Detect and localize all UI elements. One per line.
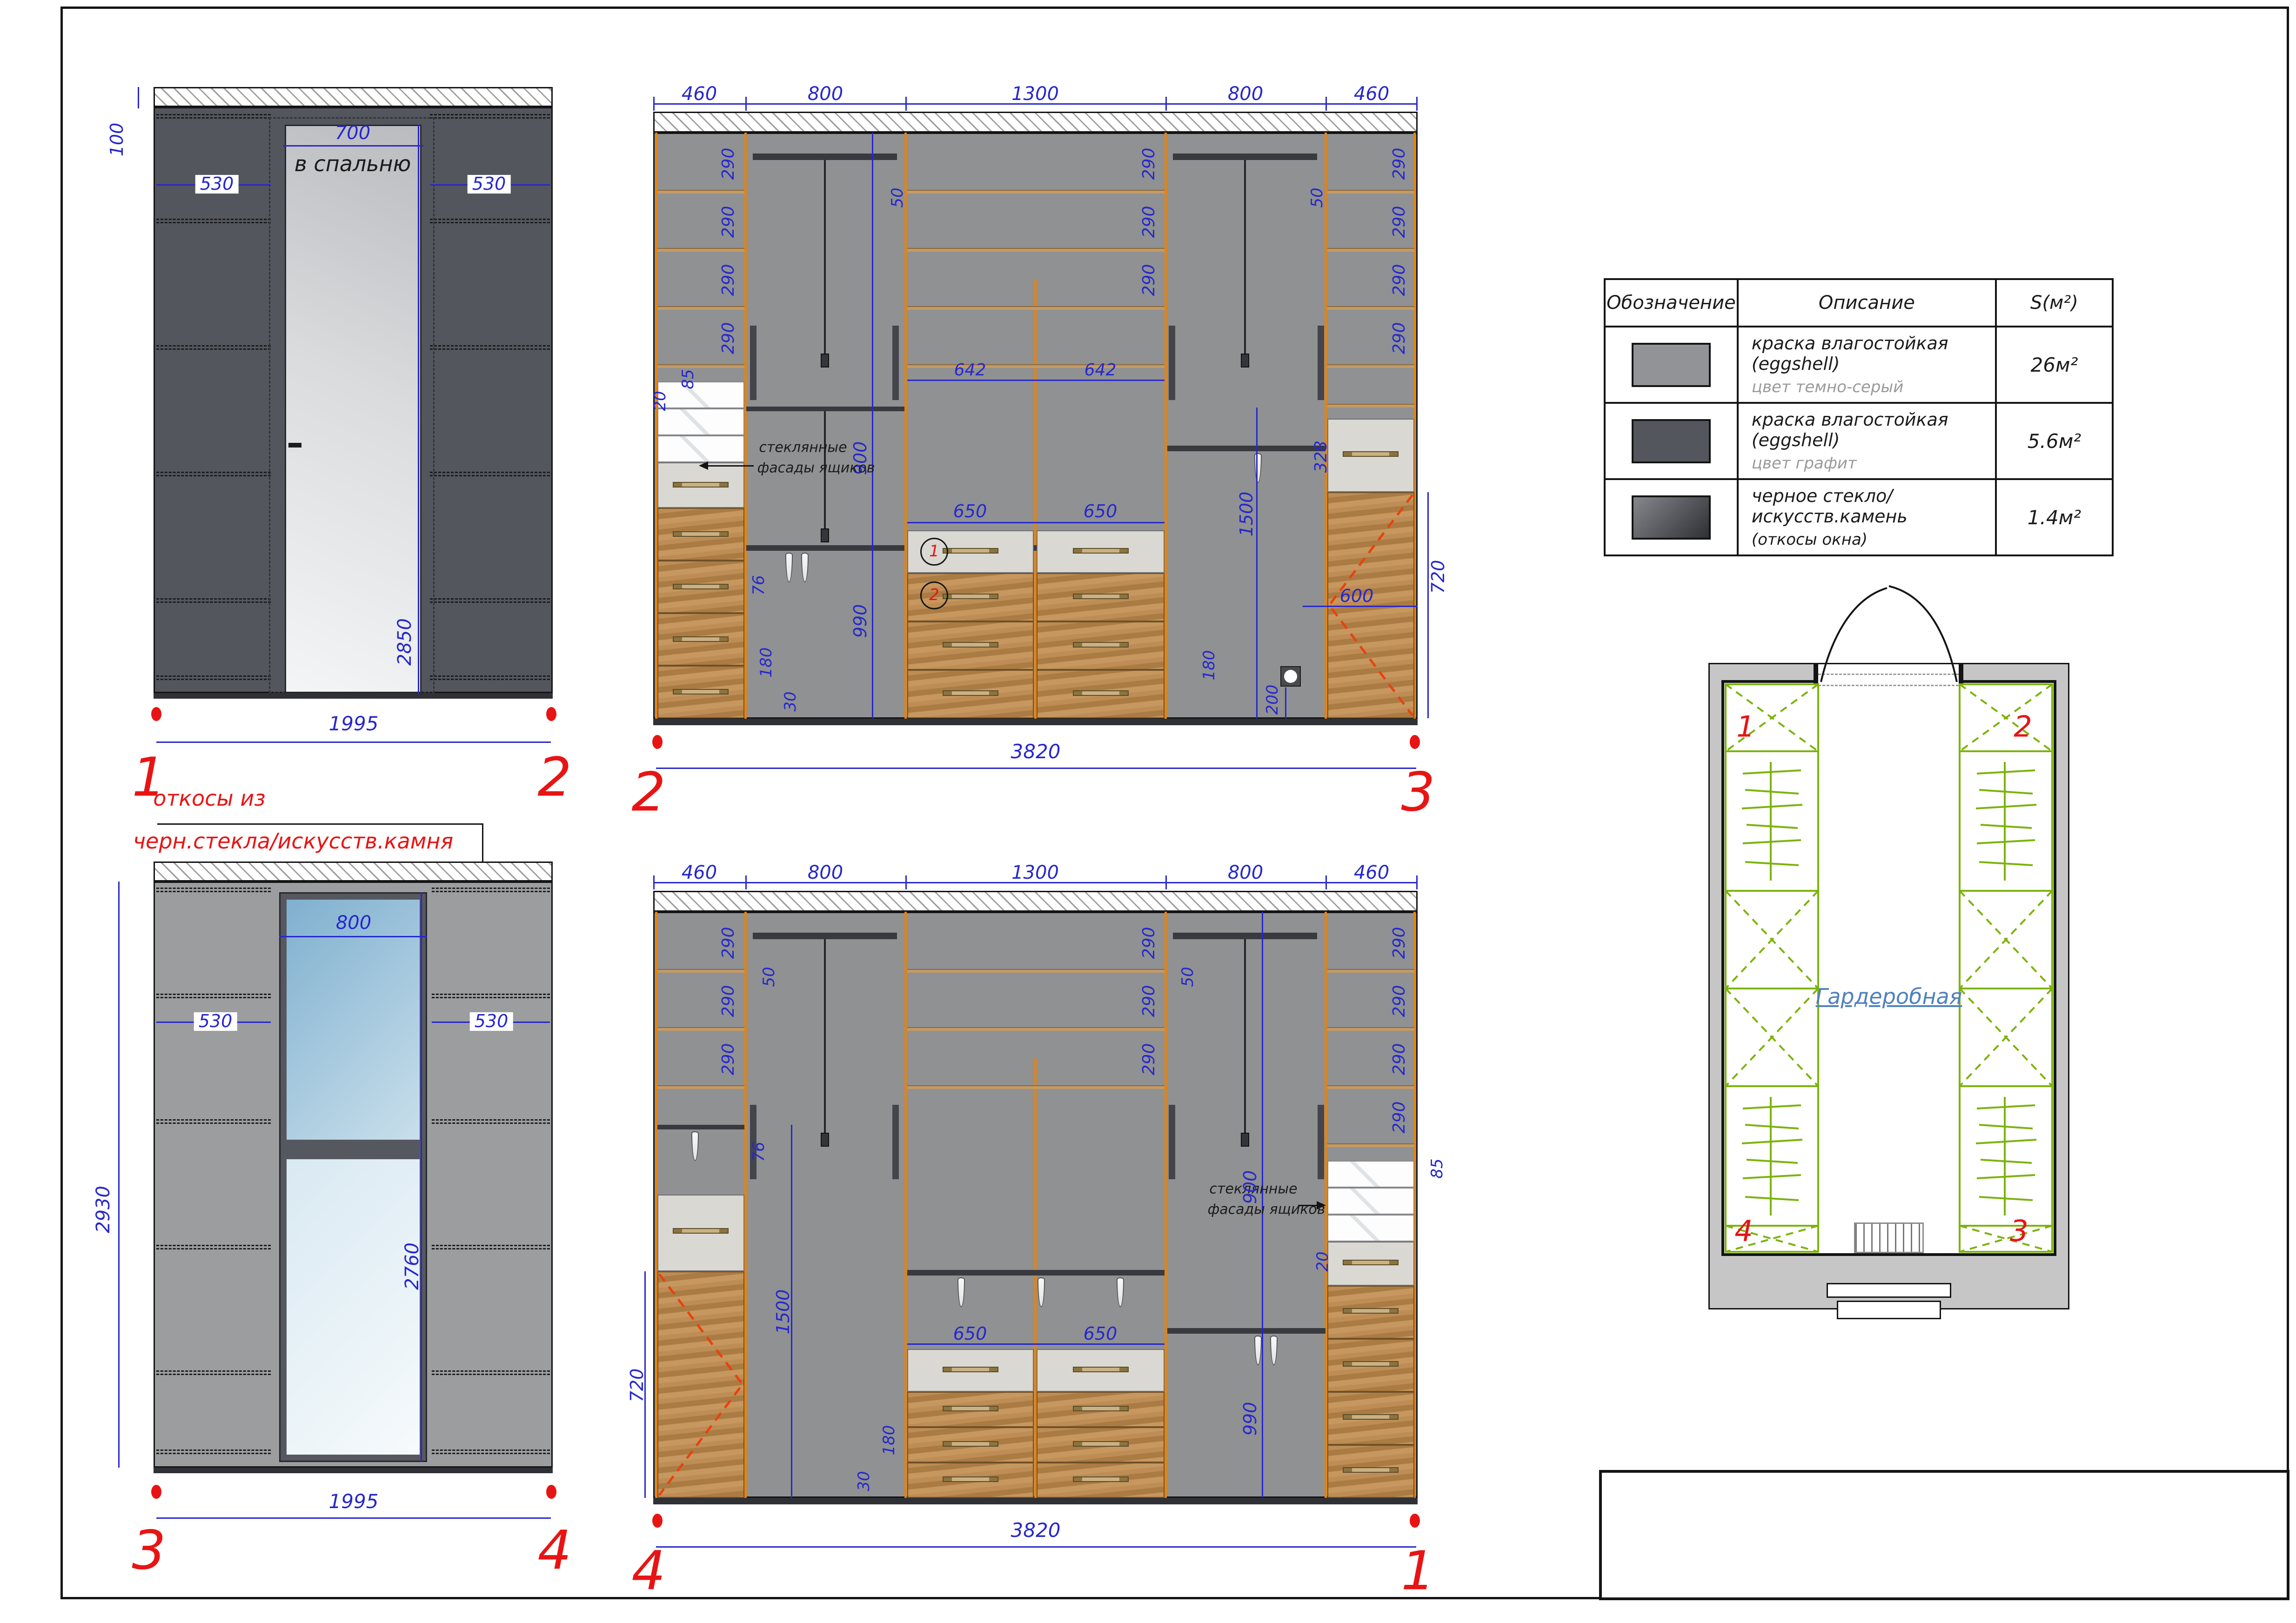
shelf [907,1027,1165,1031]
drawer-handle [943,1406,998,1411]
drawer-handle [673,1228,729,1234]
eld-dim-720: 720 [628,1369,647,1403]
eld-dim-290: 290 [1140,1043,1158,1075]
drawer-handle [673,636,729,642]
drawer-handle [1343,1260,1399,1265]
elb-dim-290: 290 [1140,206,1158,238]
panel-joint [156,345,271,350]
eld-dim-290: 290 [1140,927,1158,959]
elb-dim-990: 990 [851,604,870,638]
elc-marker-3: 3 [132,1523,166,1579]
drawer-handle [1073,548,1129,554]
legend-row: краска влагостойкая (eggshell) цвет граф… [1605,403,2113,479]
shelf [1327,306,1414,310]
dim-line [872,133,873,718]
drawer-handle [1343,1308,1399,1314]
elb-dim-290: 290 [1391,264,1408,296]
drawer-handle [1073,1441,1129,1447]
lift-bracket [1318,1105,1324,1179]
ela-dim-530-right: 530 [468,175,511,194]
partition [904,133,907,719]
section-dot [652,735,663,749]
elb-dim-290: 290 [1140,264,1158,296]
dim-tick [653,97,655,111]
plan-wardrobe-right [1958,683,2054,1253]
lift-handle [1241,1133,1249,1147]
drawer-handle [1343,1361,1399,1367]
shelf [907,306,1165,310]
eld-dim-1500: 1500 [774,1289,793,1335]
dim-line [1256,407,1258,718]
elb-dim-642: 642 [954,361,986,379]
ela-dim-1995: 1995 [329,714,379,734]
lift-bracket [1318,326,1324,400]
plan-door-threshold [1818,685,1959,686]
legend-row: краска влагостойкая (eggshell) цвет темн… [1605,327,2113,403]
door-swing-symbol [657,1271,744,1498]
drawer-handle [1073,690,1129,696]
shelf [657,364,744,368]
elb-dim-290: 290 [720,322,737,354]
eld-dim-50: 50 [1180,967,1197,987]
hanging-rail [657,1125,744,1129]
legend-desc-sub: цвет темно-серый [1752,378,1995,396]
elc-marker-4: 4 [537,1523,571,1579]
eld-dim-76: 76 [751,1142,768,1162]
eld-dim-900: 900 [1241,1170,1260,1204]
partition [904,912,907,1498]
drawer-handle [1073,1367,1129,1372]
plan-window-sill [1837,1301,1941,1319]
section-dot [652,1514,663,1528]
lift-bracket [750,326,756,400]
panel-joint [156,598,271,603]
elb-dim-top-460b: 460 [1354,84,1389,104]
dim-line [1427,492,1429,718]
elb-marker-3: 3 [1401,765,1435,821]
elb-dim-1500: 1500 [1238,492,1256,537]
lift-rod [824,160,826,354]
dim-tick [1416,97,1418,111]
section-dot [546,707,556,721]
shelf [907,1085,1165,1089]
drawer-handle [943,1476,998,1482]
dim-line [418,125,419,693]
dim-tick [905,875,907,889]
ela-marker-2: 2 [537,750,571,806]
elb-dim-642: 642 [1084,361,1117,379]
drawer-handle [943,642,998,648]
plan-room-label: Гардеробная [1816,985,1962,1008]
panel-joint [156,219,271,223]
elb-dim-650: 650 [1084,502,1118,521]
door-handle [288,443,301,447]
eld-note-glass-2: фасады ящиков [1208,1202,1325,1217]
elb-dim-top-460a: 460 [682,84,717,104]
plan-marker-4: 4 [1734,1216,1753,1246]
elb-dim-top-1300: 1300 [1011,84,1059,104]
legend-header-area: S(м²) [1996,279,2113,327]
eld-dim-top-800a: 800 [808,863,843,882]
elb-dim-290: 290 [720,148,737,180]
legend-area: 5.6м² [1996,403,2113,479]
mid-shelf [1167,446,1325,451]
shelf [1327,1085,1414,1089]
ela-door-leaf [285,125,422,693]
dim-tick [1165,97,1167,111]
elb-dim-290: 290 [1391,322,1408,354]
hanging-rail [907,1270,1165,1276]
dim-tick [1416,875,1418,889]
elb-dim-600: 600 [1340,587,1374,606]
legend-area: 1.4м² [1996,479,2113,555]
shelf [1327,1027,1414,1031]
partition [1165,133,1167,719]
eld-dim-290: 290 [720,985,737,1017]
dim-line [283,145,423,147]
legend-desc: краска влагостойкая (eggshell) [1752,333,1995,374]
note-leader [708,465,754,467]
ela-dim-700: 700 [335,123,370,143]
ela-ceiling-hatch [154,87,553,107]
lift-bracket [1169,326,1175,400]
mid-shelf [746,407,904,411]
panel-joint [156,888,271,892]
elb-dim-180: 180 [1201,650,1218,681]
eld-dim-top-1300: 1300 [1011,863,1059,882]
elb-drawer-ref-2: 2 [920,581,948,609]
lift-top-bar [1173,933,1317,939]
legend-swatch-graphite-paint [1632,419,1711,463]
legend-row: черное стекло/искусств.камень (откосы ок… [1605,479,2113,555]
eld-dim-290: 290 [1391,927,1408,959]
glass-drawer [1327,1215,1414,1242]
plan-marker-1: 1 [1736,711,1754,741]
elb-dim-50: 50 [890,187,906,207]
drawing-sheet: Обозначение Описание S(м²) краска влагос… [0,0,2296,1623]
elb-dim-3820: 3820 [1011,741,1061,762]
dim-line [279,936,427,937]
panel-joint [432,1245,550,1249]
note-leader-arrow [699,461,708,470]
dim-line [118,882,120,1468]
panel-joint [156,994,271,998]
elb-dim-328: 328 [1312,441,1330,473]
eld-dim-290: 290 [720,1043,737,1075]
lift-rod [1244,160,1246,354]
shelf [907,364,1165,368]
lift-top-bar [753,154,897,160]
elb-dim-290: 290 [1391,148,1408,180]
legend-table: Обозначение Описание S(м²) краска влагос… [1604,278,2114,556]
panel-joint [432,1119,550,1124]
panel-joint [430,472,550,476]
lift-top-bar [1173,154,1317,160]
dim-line [656,768,1416,769]
drawer-handle [943,1367,998,1372]
drawer-handle [943,594,998,599]
dim-line [138,87,139,108]
lift-handle [821,528,829,542]
dim-tick [1165,875,1167,889]
shelf [1327,1143,1414,1147]
panel-joint [156,1245,271,1249]
plan-marker-3: 3 [2010,1216,2028,1246]
section-dot [151,707,161,721]
eld-dim-290: 290 [1391,985,1408,1017]
dim-tick [1325,875,1327,889]
elb-dim-290: 290 [1140,148,1158,180]
shelf [657,190,744,194]
dim-tick [1325,97,1327,111]
shelf [907,248,1165,252]
drawer-handle [943,690,998,696]
elc-window-glass-bottom [287,1159,420,1455]
elb-note-glass-2: фасады ящиков [757,461,875,475]
drawer-handle [943,548,998,554]
eld-dim-180: 180 [881,1425,898,1456]
panel-joint [156,114,271,119]
elb-note-glass-1: стеклянные [759,440,847,455]
eld-marker-1: 1 [1401,1543,1435,1600]
plan-window [1827,1283,1951,1298]
note-line-1: откосы из [153,787,265,809]
socket-face [1284,670,1297,683]
section-dot [1410,735,1420,749]
elb-dim-290: 290 [720,206,737,238]
eld-dim-290: 290 [1391,1043,1408,1075]
section-dot [1410,1514,1420,1528]
panel-joint [432,1449,550,1454]
legend-desc: краска влагостойкая (eggshell) [1752,409,1995,450]
shelf [657,1027,744,1031]
dim-tick [745,875,747,889]
elb-dim-720: 720 [1429,560,1448,594]
elc-dim-2930: 2930 [94,1186,113,1233]
dim-line [907,380,1165,381]
shelf [1327,404,1414,407]
panel-joint [430,345,550,350]
drawer-handle [673,482,729,488]
ela-dim-100: 100 [108,123,127,157]
plan-radiator [1854,1222,1924,1253]
eld-dim-650: 650 [953,1325,987,1343]
legend-desc-sub: (откосы окна) [1752,530,1995,549]
panel-joint [430,675,550,680]
hanging-rail [746,545,904,551]
legend-desc-sub: цвет графит [1752,454,1995,473]
eld-dim-top-460b: 460 [1354,863,1389,882]
glass-drawer [1327,1161,1414,1188]
shelf [1327,969,1414,973]
elb-dim-20: 20 [652,391,669,411]
title-block [1599,1470,2289,1600]
glass-drawer [657,381,744,408]
panel-joint [432,1370,550,1375]
lift-handle [821,354,829,367]
lift-bracket [1169,1105,1175,1179]
elc-dim-800: 800 [336,913,371,933]
partition [1165,912,1167,1498]
eld-dim-top-460a: 460 [682,863,717,882]
dim-line [156,1517,551,1519]
dim-line [907,522,1165,523]
elc-ceiling-hatch [154,862,553,882]
legend-swatch-dark-gray-paint [1632,343,1711,387]
eld-dim-990: 990 [1241,1402,1260,1436]
partition [744,912,747,1498]
panel-joint [156,1449,271,1454]
drawer-handle [673,584,729,589]
legend-desc: черное стекло/искусств.камень [1752,486,1995,527]
legend-header-description: Описание [1738,279,1996,327]
panel-joint [432,888,550,892]
panel-joint [430,219,550,223]
elb-dim-top-800b: 800 [1228,84,1263,104]
drawer-handle [1343,1467,1399,1473]
glass-drawer [657,408,744,435]
shelf [1327,190,1414,194]
lift-top-bar [753,933,897,939]
section-dot [151,1485,161,1499]
panel-joint [156,1370,271,1375]
panel-joint [430,114,550,119]
ela-door-label: в спальню [295,153,411,175]
shelf [657,969,744,973]
elc-dim-2760: 2760 [402,1242,422,1290]
elb-marker-2: 2 [631,765,665,821]
ela-dim-530-left: 530 [195,175,239,194]
elb-dim-50: 50 [1309,187,1326,207]
lift-handle [1241,354,1249,367]
panel-joint [156,1119,271,1124]
shelf [657,1085,744,1089]
drawer-handle [943,1441,998,1447]
glass-drawer [1327,1188,1414,1215]
elb-ceiling-hatch [653,112,1418,133]
elc-dim-530-right: 530 [470,1012,513,1031]
elb-dim-200: 200 [1265,685,1281,715]
elc-dim-530-left: 530 [194,1012,237,1031]
ela-dim-2850: 2850 [395,618,415,666]
legend-header-row: Обозначение Описание S(м²) [1605,279,2113,327]
elb-floor-line [653,719,1418,725]
shelf [657,248,744,252]
eld-dim-650: 650 [1084,1325,1118,1343]
shelf [1327,364,1414,368]
lift-bracket [892,1105,899,1179]
panel-joint [156,472,271,476]
eld-dim-290: 290 [1140,985,1158,1017]
drawer-handle [1343,451,1399,457]
panel-joint [430,598,550,603]
dim-line [156,741,551,743]
eld-dim-top-800b: 800 [1228,863,1263,882]
legend-swatch-black-glass [1632,495,1711,540]
section-dot [546,1485,556,1499]
elb-dim-76: 76 [751,575,768,595]
lift-rod [1244,939,1246,1133]
eld-floor-line [653,1498,1418,1504]
eld-dim-290: 290 [720,927,737,959]
elb-dim-290: 290 [720,264,737,296]
note-leader [157,823,483,825]
elb-dim-290: 290 [1391,206,1408,238]
dim-line [1285,688,1286,718]
drawer-handle [1073,1476,1129,1482]
elb-drawer-ref-1: 1 [920,538,948,566]
drawer-handle [1073,1406,1129,1411]
hanging-rail [1167,1328,1325,1334]
eld-dim-85: 85 [1429,1158,1446,1178]
elb-dim-85: 85 [680,369,697,389]
elc-floor-line [154,1468,553,1473]
elc-dim-1995: 1995 [329,1491,379,1512]
plan-door-leaves [1800,577,1978,684]
plan-marker-2: 2 [2014,711,2032,741]
drawer-handle [1343,1414,1399,1420]
drawer-handle [1073,642,1129,648]
drawer-handle [673,689,729,695]
elb-dim-180: 180 [758,648,775,678]
dim-line [656,1546,1416,1548]
legend-area: 26м² [1996,327,2113,403]
eld-dim-290: 290 [1391,1102,1408,1134]
panel-joint [156,675,271,680]
dim-tick [905,97,907,111]
eld-dim-50: 50 [761,967,778,987]
shelf [907,969,1165,973]
elb-dim-top-800a: 800 [808,84,843,104]
dim-tick [745,97,747,111]
shelf [657,306,744,310]
lift-handle [821,1133,829,1147]
shelf [1327,248,1414,252]
eld-ceiling-hatch [653,891,1418,912]
plan-wardrobe-left [1724,683,1820,1253]
eld-dim-30: 30 [856,1471,873,1491]
dim-tick [653,875,655,889]
eld-marker-4: 4 [631,1543,665,1600]
legend-header-symbol: Обозначение [1605,279,1738,327]
dim-line [907,1343,1165,1345]
drawer-handle [1073,594,1129,599]
lift-bracket [892,326,899,400]
lift-rod [824,939,826,1133]
ela-floor-line [154,693,553,699]
dim-line [421,892,422,1462]
glass-drawer [657,435,744,462]
eld-dim-20: 20 [1315,1251,1332,1271]
eld-dim-3820: 3820 [1011,1520,1061,1541]
shelf [907,190,1165,194]
elb-dim-30: 30 [783,691,799,711]
drawer-handle [673,531,729,537]
panel-joint [432,994,550,998]
note-line-2: черн.стекла/искусств.камня [133,830,453,852]
partition [744,133,747,719]
partition [1325,133,1327,719]
elb-dim-650: 650 [953,502,987,521]
